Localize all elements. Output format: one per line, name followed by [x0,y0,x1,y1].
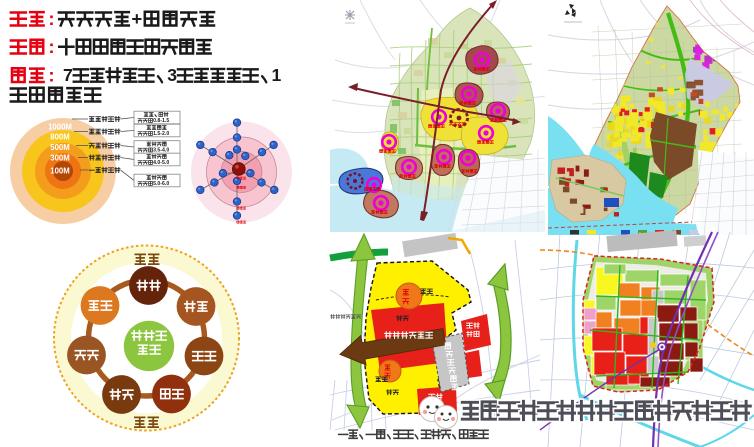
svg-text:300M: 300M [50,154,70,163]
svg-text::: : [48,64,54,85]
svg-text:4.0-5.0: 4.0-5.0 [153,160,169,166]
svg-text:7: 7 [63,65,73,85]
svg-text:0.8-1.5: 0.8-1.5 [153,118,169,124]
svg-text:3: 3 [167,65,177,85]
svg-text:5.0-6.0: 5.0-6.0 [153,181,169,187]
svg-text:1.5-2.0: 1.5-2.0 [153,131,169,137]
svg-text:100M: 100M [50,166,70,175]
svg-text:+: + [131,8,142,29]
svg-text:1000M: 1000M [48,122,72,131]
svg-text::: : [48,36,54,57]
svg-text:1: 1 [272,65,282,85]
svg-text:500M: 500M [50,143,70,152]
svg-text::: : [48,8,54,29]
svg-text:800M: 800M [50,132,70,141]
